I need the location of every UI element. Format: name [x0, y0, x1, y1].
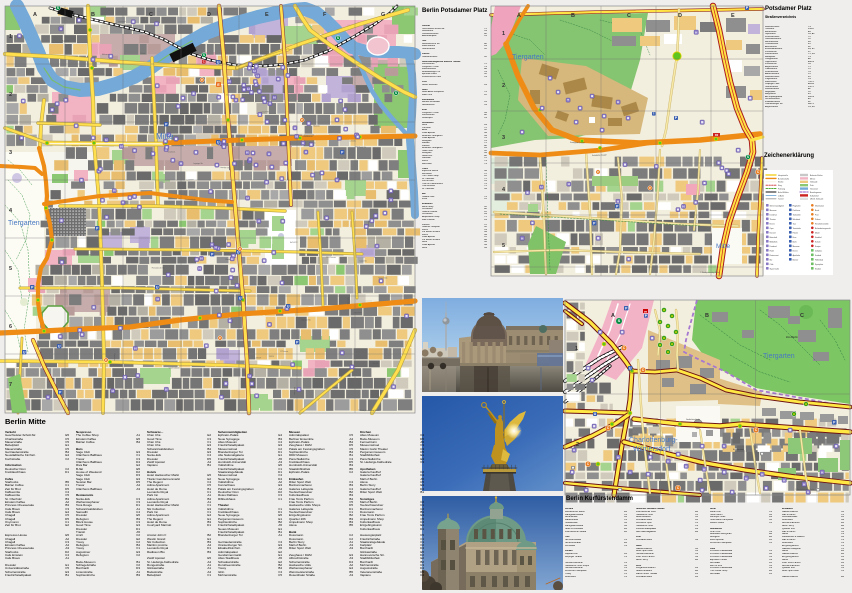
svg-text:3: 3 [502, 135, 505, 141]
svg-text:E: E [731, 13, 735, 19]
svg-text:H: H [805, 402, 807, 406]
svg-text:1: 1 [502, 31, 505, 37]
svg-text:Bebaute Fläche: Bebaute Fläche [810, 174, 823, 177]
svg-text:Stadion: Stadion [815, 267, 821, 270]
svg-text:Behindertengerecht: Behindertengerecht [815, 227, 831, 230]
svg-text:H: H [671, 314, 673, 318]
svg-text:Charlottenburg-: Charlottenburg- [629, 437, 678, 444]
svg-text:Botschaft: Botschaft [770, 236, 778, 239]
svg-text:H: H [803, 482, 805, 486]
svg-text:Straße: Straße [778, 181, 783, 184]
svg-text:H: H [215, 246, 217, 250]
svg-text:Luisenstr.: Luisenstr. [360, 260, 368, 263]
svg-text:H: H [257, 74, 259, 78]
svg-text:Hotel: Hotel [770, 249, 775, 252]
svg-text:H: H [228, 80, 230, 84]
svg-text:H: H [231, 257, 233, 261]
svg-text:Museum: Museum [793, 246, 800, 248]
svg-text:H: H [667, 350, 669, 354]
svg-text:H: H [294, 126, 296, 130]
svg-text:Steg: Steg [778, 184, 782, 187]
svg-text:Reiseführerstelle: Reiseführerstelle [815, 222, 828, 225]
svg-text:Parkhaus: Parkhaus [793, 210, 801, 212]
svg-text:H: H [273, 95, 275, 99]
svg-text:S: S [618, 318, 621, 323]
svg-text:Tiergarten: Tiergarten [512, 54, 544, 61]
svg-text:G: G [381, 12, 385, 18]
svg-text:Behrenstr.: Behrenstr. [347, 297, 350, 305]
svg-text:H: H [685, 464, 687, 468]
svg-text:Linienstr.: Linienstr. [255, 356, 262, 359]
svg-text:H: H [376, 244, 378, 248]
svg-text:Dorotheenstr.: Dorotheenstr. [326, 256, 337, 260]
svg-text:H: H [302, 141, 304, 145]
svg-text:H: H [390, 198, 392, 202]
svg-text:A: A [33, 12, 37, 18]
svg-text:Gipsstr.: Gipsstr. [269, 355, 275, 358]
svg-text:Sportplatz: Sportplatz [815, 263, 823, 266]
svg-text:Markt: Markt [815, 231, 820, 234]
svg-text:S: S [203, 53, 205, 57]
svg-text:Bank: Bank [815, 210, 819, 212]
svg-text:H: H [573, 448, 575, 452]
svg-text:Restaurant: Restaurant [770, 254, 779, 257]
svg-text:B: B [91, 12, 95, 18]
svg-text:7: 7 [9, 382, 12, 388]
svg-text:H: H [540, 185, 542, 189]
svg-text:D: D [678, 13, 682, 19]
svg-text:H: H [165, 387, 167, 391]
svg-text:H: H [807, 490, 809, 494]
svg-text:Polizei: Polizei [815, 219, 821, 221]
svg-text:S-Bahnhof: S-Bahnhof [810, 195, 819, 197]
svg-text:Leipziger Str.: Leipziger Str. [193, 162, 203, 165]
svg-text:Apotheke: Apotheke [793, 254, 801, 257]
svg-text:© Stadtplanverlag Berlin: © Stadtplanverlag Berlin [795, 488, 814, 491]
svg-text:H: H [200, 256, 202, 260]
svg-text:Albrechtstr.: Albrechtstr. [353, 311, 362, 314]
svg-text:Luisenstr.: Luisenstr. [186, 178, 194, 181]
svg-text:Dorotheenstr.: Dorotheenstr. [303, 135, 314, 138]
svg-text:H: H [723, 444, 725, 448]
svg-text:Rochstr.: Rochstr. [372, 362, 379, 365]
svg-text:Behrenstr.: Behrenstr. [290, 240, 298, 243]
svg-text:Charitestr.: Charitestr. [168, 150, 176, 153]
svg-text:H: H [249, 374, 251, 378]
svg-text:Münzstr.: Münzstr. [314, 125, 321, 128]
svg-text:Supermarkt: Supermarkt [770, 267, 780, 270]
svg-text:Mitte: Mitte [156, 132, 174, 141]
svg-text:H: H [663, 308, 665, 312]
svg-text:1: 1 [9, 34, 12, 40]
svg-text:H: H [258, 219, 260, 223]
svg-text:© Stadtplanverlag Berlin: © Stadtplanverlag Berlin [358, 409, 380, 412]
svg-text:Auguststr.: Auguststr. [62, 39, 70, 42]
svg-text:i: i [653, 112, 654, 116]
svg-text:6: 6 [9, 324, 12, 330]
svg-text:H: H [180, 162, 182, 166]
svg-text:Friedhof: Friedhof [815, 237, 822, 239]
svg-text:H: H [60, 27, 62, 31]
svg-text:Sehenswürdigkeit: Sehenswürdigkeit [770, 204, 785, 207]
svg-text:H: H [105, 138, 107, 142]
svg-text:Universitätsstr.: Universitätsstr. [169, 366, 181, 369]
svg-text:S: S [57, 6, 59, 10]
svg-text:C: C [800, 313, 804, 319]
svg-text:H: H [629, 470, 631, 474]
svg-text:e: e [219, 336, 221, 340]
svg-text:H: H [92, 58, 94, 62]
svg-text:Oper: Oper [770, 228, 774, 230]
svg-text:Gedächtniskirche: Gedächtniskirche [686, 418, 700, 421]
svg-text:S: S [395, 91, 397, 95]
svg-text:5: 5 [9, 266, 12, 272]
svg-text:H: H [157, 297, 159, 301]
svg-text:e: e [239, 247, 241, 251]
svg-text:Parkweg: Parkweg [778, 189, 785, 191]
svg-text:H: H [113, 189, 115, 193]
svg-text:öffentl. Gebäude: öffentl. Gebäude [810, 198, 823, 201]
svg-text:Bibliothek: Bibliothek [770, 240, 778, 243]
svg-text:Französische Str.: Französische Str. [152, 266, 166, 269]
svg-text:H: H [305, 150, 307, 154]
svg-text:H: H [659, 343, 661, 347]
svg-text:5: 5 [502, 243, 505, 249]
svg-text:H: H [199, 267, 201, 271]
svg-text:B: B [705, 313, 709, 319]
svg-text:Gebäude: Gebäude [810, 182, 817, 184]
svg-text:2: 2 [576, 442, 579, 448]
svg-text:E: E [265, 12, 269, 18]
svg-text:H: H [793, 412, 795, 416]
svg-text:H: H [47, 395, 49, 399]
svg-text:H: H [296, 134, 298, 138]
svg-text:Universitätsstr.: Universitätsstr. [185, 198, 197, 201]
svg-text:H: H [568, 182, 570, 186]
svg-text:H: H [761, 472, 763, 476]
svg-text:Leipziger Str.: Leipziger Str. [336, 157, 347, 161]
svg-text:H: H [671, 342, 673, 346]
svg-text:2: 2 [9, 92, 12, 98]
svg-text:R2: R2 [715, 133, 719, 137]
svg-text:C: C [627, 13, 631, 19]
svg-text:Bank: Bank [793, 241, 797, 243]
svg-text:Schule: Schule [815, 241, 821, 243]
svg-text:Leipziger Str.: Leipziger Str. [220, 166, 231, 170]
svg-text:Zoo Berlin: Zoo Berlin [786, 335, 798, 339]
svg-text:Messe: Messe [810, 178, 815, 180]
svg-text:Denkmal: Denkmal [770, 214, 778, 216]
svg-text:H: H [675, 330, 677, 334]
svg-text:Theater: Theater [770, 218, 777, 221]
svg-text:H: H [120, 144, 122, 148]
svg-text:Flughafen: Flughafen [793, 205, 801, 207]
svg-text:S: S [337, 36, 339, 40]
svg-text:E: E [217, 83, 220, 87]
svg-text:Potsdamer Straße: Potsdamer Straße [570, 141, 585, 144]
svg-text:Kirche: Kirche [793, 250, 798, 252]
svg-text:H: H [269, 102, 271, 106]
svg-text:Potsdamer Straße: Potsdamer Straße [592, 153, 607, 157]
svg-text:B: B [571, 13, 575, 19]
svg-text:H: H [134, 346, 136, 350]
svg-text:H: H [235, 98, 237, 102]
svg-text:H: H [617, 100, 619, 104]
svg-text:e: e [201, 78, 203, 82]
svg-text:Information: Information [815, 204, 824, 207]
svg-text:U-Bahn: U-Bahn [778, 195, 784, 197]
svg-text:C: C [149, 12, 153, 18]
svg-text:Tiergarten: Tiergarten [763, 353, 795, 360]
svg-text:Touristinfo: Touristinfo [793, 227, 801, 230]
svg-text:A: A [611, 313, 615, 319]
svg-text:Kurstr.: Kurstr. [140, 52, 146, 55]
svg-text:H: H [336, 178, 338, 182]
svg-text:Kirche: Kirche [770, 223, 775, 225]
svg-text:H: H [745, 476, 747, 480]
svg-text:D: D [207, 12, 211, 18]
svg-text:Europacenter: Europacenter [733, 448, 744, 451]
svg-text:Hauptstraße: Hauptstraße [778, 174, 788, 177]
svg-text:e: e [597, 170, 599, 174]
svg-text:H: H [617, 199, 619, 203]
svg-text:Polizei: Polizei [793, 232, 799, 234]
svg-text:Tankstelle: Tankstelle [793, 213, 801, 216]
svg-text:Post: Post [815, 213, 819, 216]
svg-text:H: H [703, 467, 705, 471]
svg-text:Denkmal: Denkmal [770, 246, 778, 248]
svg-text:Spandauer Str.: Spandauer Str. [355, 145, 367, 149]
svg-text:H: H [667, 459, 669, 463]
svg-text:H: H [667, 324, 669, 328]
svg-text:Kneipe: Kneipe [815, 246, 821, 248]
svg-text:Mittelstr.: Mittelstr. [332, 386, 339, 389]
svg-text:H: H [246, 151, 248, 155]
svg-text:H: H [122, 201, 124, 205]
svg-text:Zimmerstr.: Zimmerstr. [280, 350, 289, 353]
svg-text:Tunnel: Tunnel [778, 199, 784, 201]
svg-text:e: e [649, 186, 651, 190]
svg-text:H: H [663, 336, 665, 340]
svg-text:Wilmersdorf: Wilmersdorf [633, 446, 670, 453]
svg-text:Gewässer: Gewässer [810, 189, 818, 191]
svg-text:Mulackstr.: Mulackstr. [118, 20, 126, 23]
svg-text:H: H [211, 243, 213, 247]
svg-text:H: H [682, 204, 684, 208]
svg-text:S: S [747, 155, 749, 159]
svg-text:Museum: Museum [770, 210, 777, 212]
svg-text:Konzert: Konzert [770, 231, 777, 234]
svg-text:Bar: Bar [770, 259, 773, 261]
svg-text:Bäcker: Bäcker [793, 259, 799, 261]
svg-text:e: e [105, 358, 107, 362]
svg-text:H: H [268, 152, 270, 156]
svg-text:Club: Club [770, 264, 774, 266]
svg-text:3: 3 [9, 150, 12, 156]
svg-text:H: H [617, 455, 619, 459]
svg-text:H: H [247, 196, 249, 200]
svg-text:Kino: Kino [793, 237, 797, 239]
svg-text:e: e [301, 118, 303, 122]
svg-text:Zeltplatz: Zeltplatz [815, 249, 822, 252]
svg-text:H: H [821, 470, 823, 474]
svg-text:Hallenbad: Hallenbad [815, 259, 823, 261]
svg-text:H: H [783, 478, 785, 482]
svg-text:H: H [521, 236, 523, 240]
svg-text:Charitestr.: Charitestr. [113, 353, 116, 361]
svg-text:Bezirksgrenze: Bezirksgrenze [810, 192, 821, 194]
svg-text:H: H [249, 158, 251, 162]
svg-text:T: T [567, 98, 569, 102]
svg-text:1: 1 [575, 346, 578, 352]
svg-text:Linienstr.: Linienstr. [349, 140, 356, 143]
svg-text:© Stadtplanverlag Berlin: © Stadtplanverlag Berlin [700, 271, 719, 274]
svg-text:2: 2 [502, 83, 505, 89]
svg-text:H: H [253, 69, 255, 73]
svg-text:Werkstatt: Werkstatt [793, 218, 801, 221]
svg-text:Bahn/S-Bahn: Bahn/S-Bahn [778, 192, 789, 194]
svg-text:H: H [112, 389, 114, 393]
svg-text:Mitte: Mitte [716, 243, 730, 250]
svg-text:C: C [203, 60, 205, 64]
svg-text:Tiergarten: Tiergarten [8, 220, 40, 227]
svg-text:H: H [695, 30, 697, 34]
svg-text:H: H [659, 320, 661, 324]
svg-text:H: H [247, 87, 249, 91]
svg-text:Park: Park [810, 185, 814, 187]
svg-text:Leipziger Str.: Leipziger Str. [301, 319, 311, 322]
svg-text:Albrechtstr.: Albrechtstr. [293, 387, 296, 396]
svg-text:A: A [517, 13, 521, 19]
svg-text:Freibad: Freibad [815, 255, 821, 257]
svg-text:Bundesstraße: Bundesstraße [778, 177, 789, 180]
